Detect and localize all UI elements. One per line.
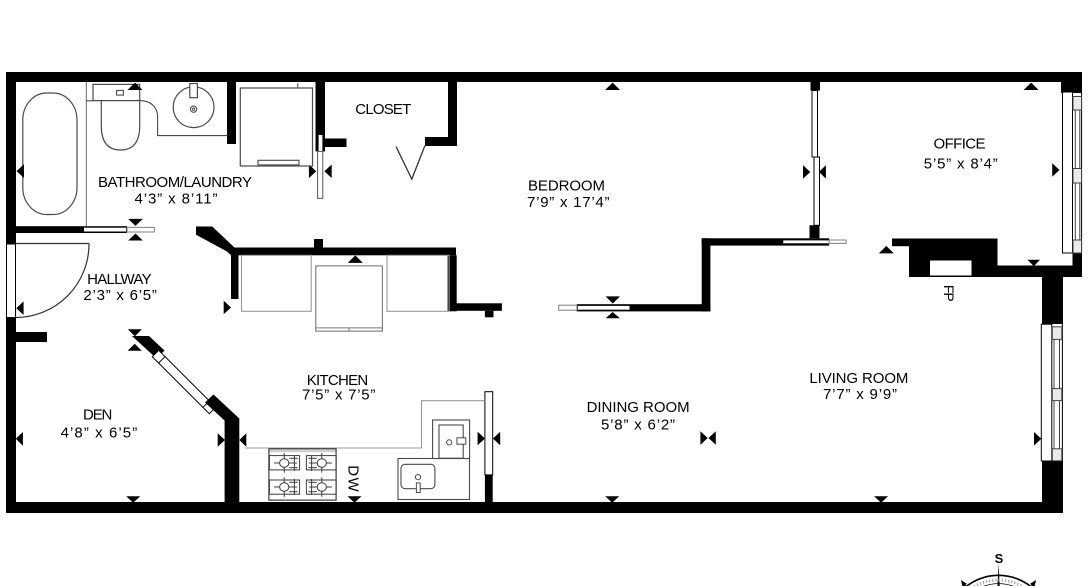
svg-text:OFFICE: OFFICE [934,136,986,153]
svg-text:7’5” x 7’5”: 7’5” x 7’5” [302,387,375,404]
svg-text:BATHROOM/LAUNDRY: BATHROOM/LAUNDRY [98,174,252,191]
svg-text:7’7” x 9’9”: 7’7” x 9’9” [823,386,897,403]
svg-text:7’9” x 17’4”: 7’9” x 17’4” [527,194,610,211]
svg-text:BEDROOM: BEDROOM [528,178,605,195]
svg-text:HALLWAY: HALLWAY [87,271,152,288]
svg-text:DINING ROOM: DINING ROOM [587,399,690,416]
svg-text:DW: DW [344,465,361,492]
svg-text:5’8” x 6’2”: 5’8” x 6’2” [601,417,675,434]
svg-text:2’3” x 6’5”: 2’3” x 6’5” [83,287,156,304]
svg-text:4’3” x 8’11”: 4’3” x 8’11” [135,191,218,208]
svg-text:DEN: DEN [83,407,112,424]
svg-text:S: S [995,551,1004,566]
svg-text:LIVING ROOM: LIVING ROOM [809,370,908,387]
svg-text:4’8” x 6’5”: 4’8” x 6’5” [61,425,138,442]
svg-text:FP: FP [941,285,957,302]
svg-text:CLOSET: CLOSET [355,101,411,118]
svg-text:5’5” x 8’4”: 5’5” x 8’4” [924,156,998,173]
